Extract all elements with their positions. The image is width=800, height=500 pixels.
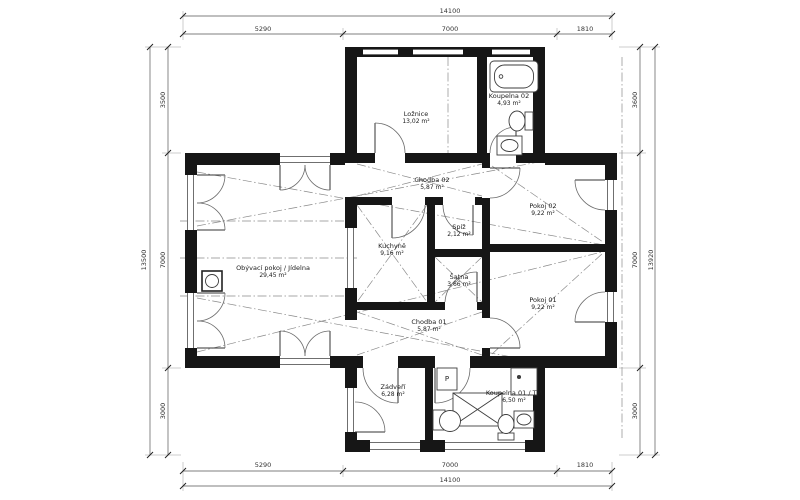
- dim-bottom-seg-3: 1810: [555, 461, 615, 469]
- room-area: 5,87 m²: [411, 326, 446, 334]
- room-name: Kuchyně: [378, 242, 406, 250]
- washing-machine-label: P: [437, 368, 457, 390]
- room-area: 4,93 m²: [489, 100, 529, 108]
- room-area: 6,50 m²: [486, 397, 542, 405]
- room-area: 9,16 m²: [378, 250, 406, 258]
- floor-plan: P Ložnice 13,02 m² Koupelna 02 4,93 m² C…: [0, 0, 800, 500]
- dim-bottom-seg-1: 5290: [233, 461, 293, 469]
- dim-left-seg-2: 7000: [159, 238, 169, 282]
- toilet-icon: [509, 111, 533, 131]
- stove-icon: [202, 271, 222, 291]
- room-name: Koupelna 02: [489, 92, 529, 100]
- dim-top-seg-3: 1810: [555, 25, 615, 33]
- room-label-obyvaci-pokoj: Obývací pokoj / Jídelna 29,45 m²: [236, 264, 310, 280]
- dim-left-seg-1: 3500: [159, 78, 169, 122]
- dim-right-total: 13920: [647, 238, 657, 282]
- toilet-icon: [498, 415, 514, 441]
- boiler-icon: [433, 410, 461, 432]
- room-area: 9,22 m²: [529, 304, 556, 312]
- room-label-zadveri: Zádveří 6,28 m²: [381, 383, 406, 399]
- room-area: 13,02 m²: [402, 118, 429, 126]
- room-name: Obývací pokoj / Jídelna: [236, 264, 310, 272]
- room-name: Chodba 02: [414, 176, 449, 184]
- room-area: 5,87 m²: [414, 184, 449, 192]
- room-name: Ložnice: [402, 110, 429, 118]
- dim-bottom-seg-2: 7000: [420, 461, 480, 469]
- dim-left-seg-3: 3000: [159, 389, 169, 433]
- dim-bottom-total: 14100: [420, 476, 480, 484]
- room-label-pokoj-01: Pokoj 01 9,22 m²: [529, 296, 556, 312]
- room-name: Pokoj 01: [529, 296, 556, 304]
- dim-right-seg-3: 3000: [631, 389, 641, 433]
- room-name: Spíž: [447, 223, 471, 231]
- room-name: Chodba 01: [411, 318, 446, 326]
- room-area: 9,22 m²: [529, 210, 556, 218]
- dim-left-total: 13500: [140, 238, 150, 282]
- sink-icon: [497, 136, 522, 155]
- dim-top-seg-1: 5290: [233, 25, 293, 33]
- room-name: Pokoj 02: [529, 202, 556, 210]
- room-label-koupelna-01: Koupelna 01 / TM 6,50 m²: [486, 389, 542, 405]
- dim-right-seg-2: 7000: [631, 238, 641, 282]
- room-name: Koupelna 01 / TM: [486, 389, 542, 397]
- room-label-spiz: Spíž 2,12 m²: [447, 223, 471, 239]
- room-name: Zádveří: [381, 383, 406, 391]
- dim-top-total: 14100: [420, 7, 480, 15]
- room-label-pokoj-02: Pokoj 02 9,22 m²: [529, 202, 556, 218]
- room-area: 29,45 m²: [236, 272, 310, 280]
- room-area: 2,12 m²: [447, 231, 471, 239]
- dim-right-seg-1: 3600: [631, 78, 641, 122]
- room-area: 3,66 m²: [447, 281, 471, 289]
- bathtub-icon: [490, 61, 538, 92]
- room-label-koupelna-02: Koupelna 02 4,93 m²: [489, 92, 529, 108]
- room-label-chodba-02: Chodba 02 5,87 m²: [414, 176, 449, 192]
- dim-top-seg-2: 7000: [420, 25, 480, 33]
- room-label-chodba-01: Chodba 01 5,87 m²: [411, 318, 446, 334]
- room-label-kuchyne: Kuchyně 9,16 m²: [378, 242, 406, 258]
- room-label-satna: Šatna 3,66 m²: [447, 273, 471, 289]
- room-label-loznice: Ložnice 13,02 m²: [402, 110, 429, 126]
- sink-icon: [514, 411, 534, 428]
- room-area: 6,28 m²: [381, 391, 406, 399]
- room-name: Šatna: [447, 273, 471, 281]
